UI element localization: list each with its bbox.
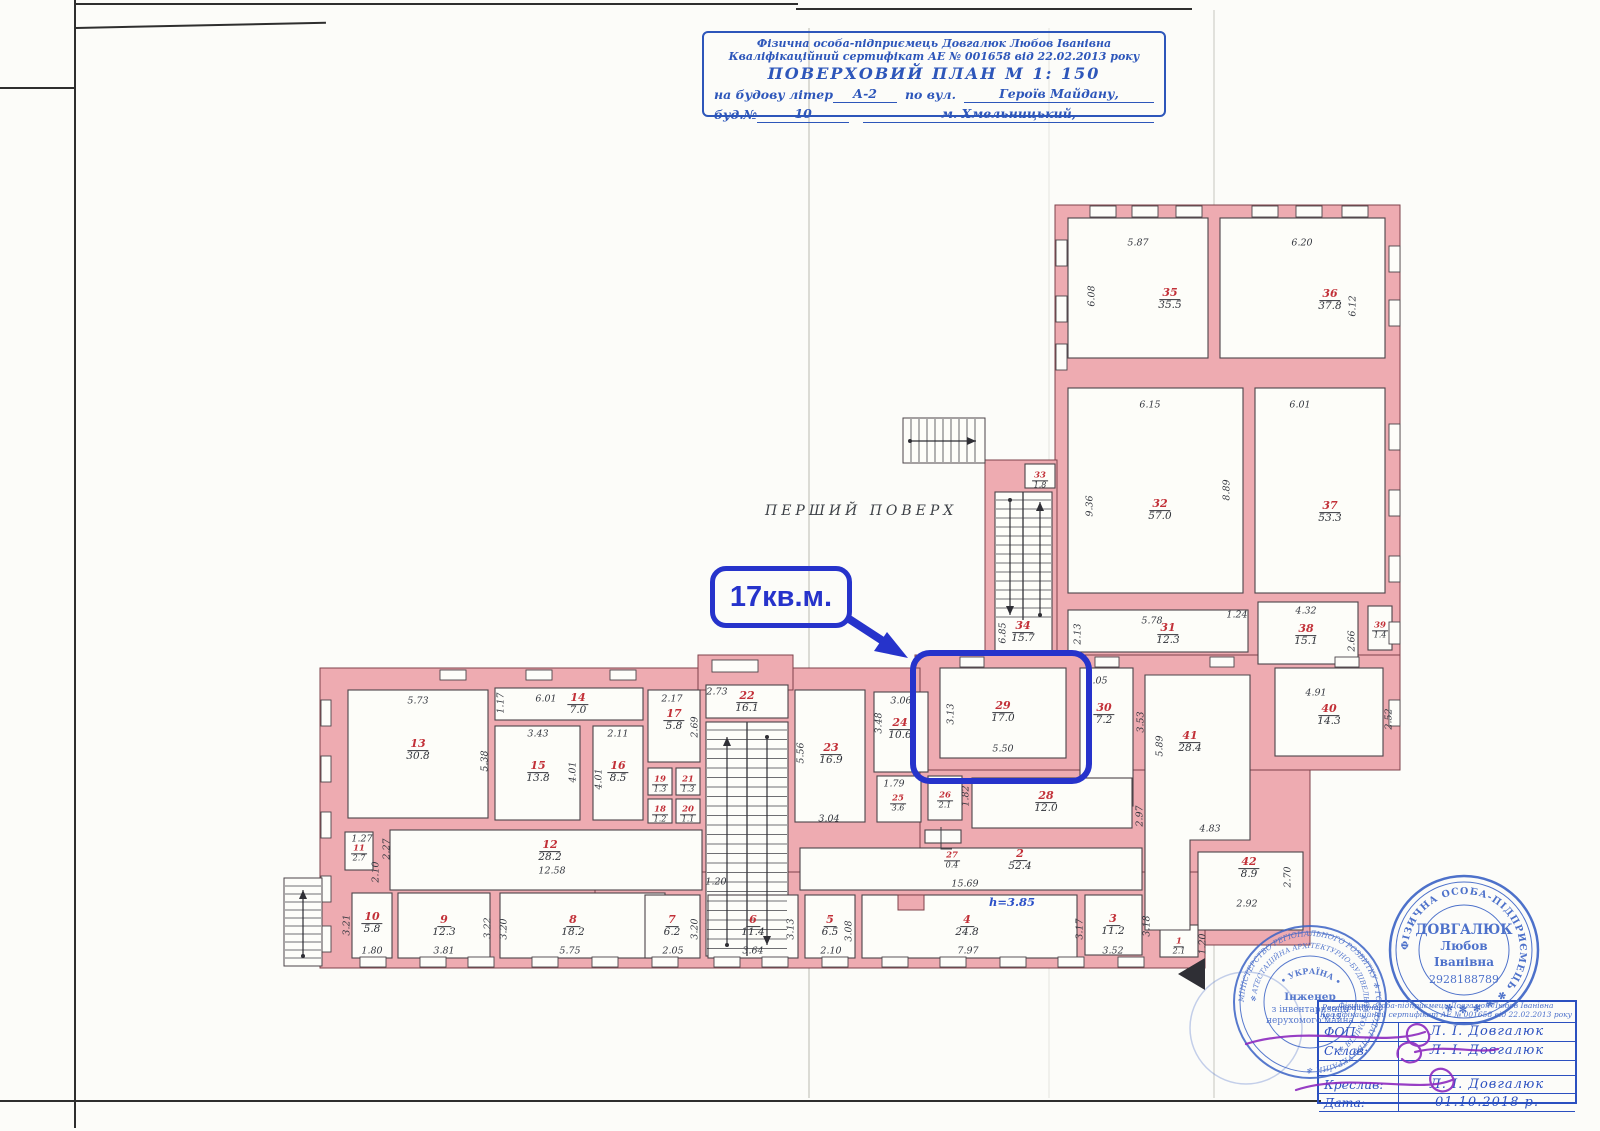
scanned-floor-plan-page: 3535.53637.83257.03753.3331.83415.73112.… <box>0 0 1600 1131</box>
callout-arrow <box>0 0 1600 1131</box>
